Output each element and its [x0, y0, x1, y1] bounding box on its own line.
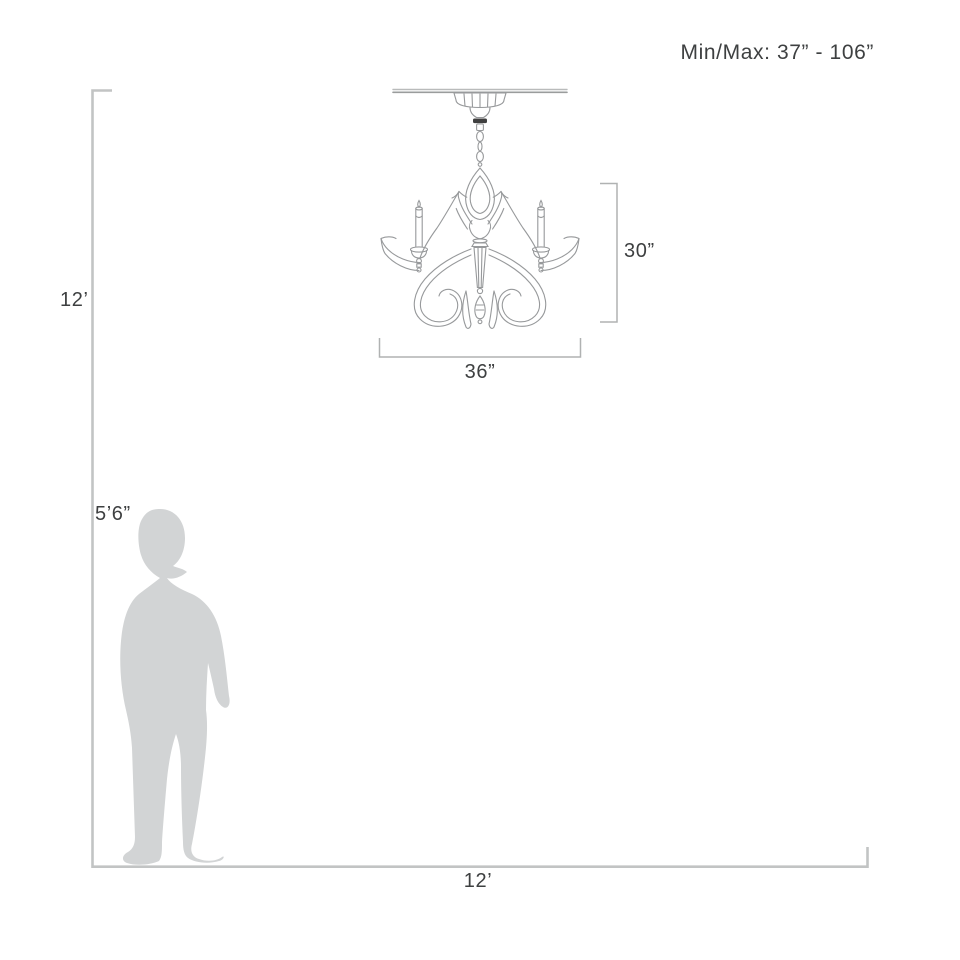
room-height-label: 12’	[60, 289, 89, 312]
fixture-height-bracket	[600, 184, 617, 323]
hanging-chain	[477, 132, 484, 167]
scroll-arm-right	[488, 192, 579, 329]
min-max-hanging-height-label: Min/Max: 37” - 106”	[681, 41, 874, 65]
fixture-width-label: 36”	[430, 361, 530, 384]
ceiling-canopy	[454, 93, 506, 131]
fixture-width-bracket	[380, 338, 581, 357]
room-boundary-lines	[93, 91, 868, 867]
person-height-label: 5’6”	[95, 503, 131, 526]
scroll-arm-left	[381, 192, 472, 329]
dimension-diagram-graphic	[0, 0, 960, 960]
crystal-drop	[475, 296, 485, 319]
diagram-canvas: Min/Max: 37” - 106” 12’ 5’6” 30” 36” 12’	[0, 0, 960, 960]
ceiling-line	[393, 90, 567, 93]
fixture-height-label: 30”	[624, 240, 655, 263]
person-silhouette	[120, 509, 229, 865]
bobeche	[533, 247, 550, 252]
room-width-label: 12’	[428, 870, 528, 893]
chandelier-center-body	[466, 168, 495, 324]
canopy-collar	[473, 119, 487, 124]
candle	[533, 201, 550, 273]
chandelier-drawing	[381, 90, 579, 329]
